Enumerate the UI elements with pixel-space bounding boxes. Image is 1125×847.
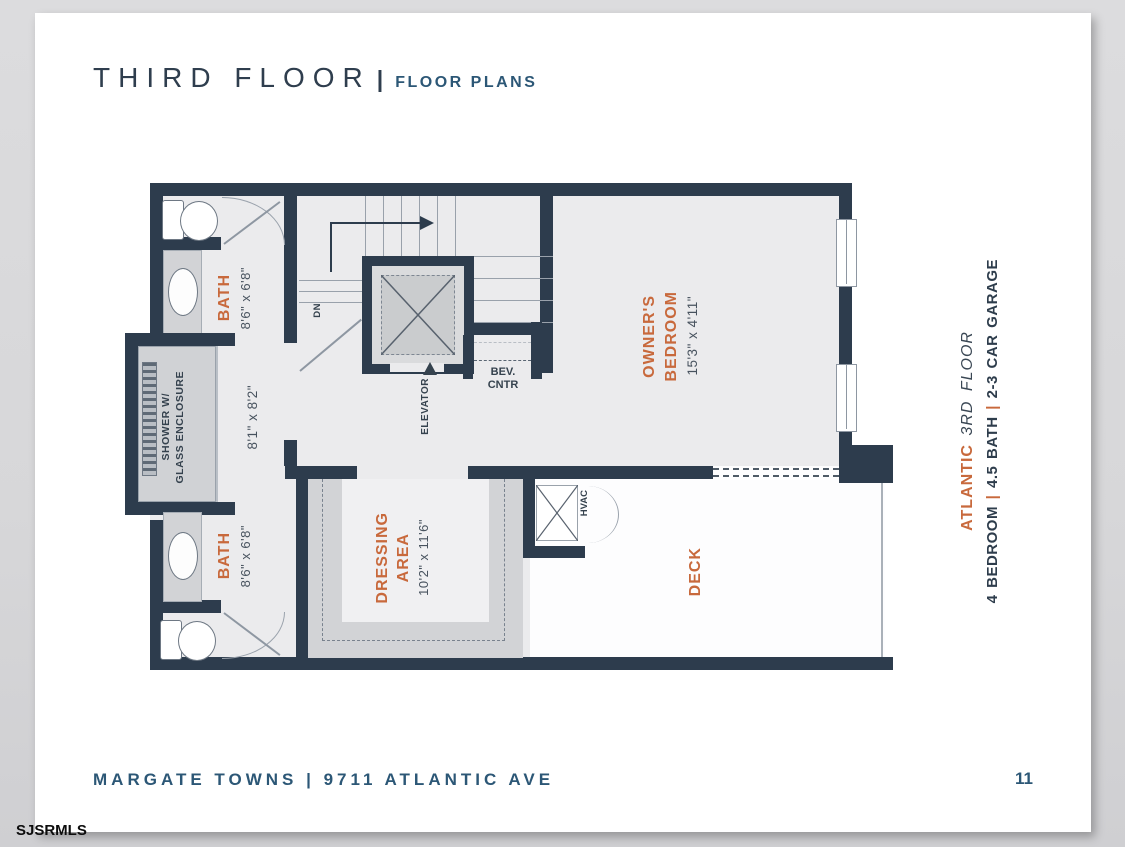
floor-label: 3RD FLOOR	[959, 331, 976, 436]
bath-lower-label: BATH 8'6" x 6'8"	[216, 506, 253, 606]
wall	[125, 333, 138, 515]
spec-separator: |	[984, 494, 1001, 499]
plan-name: ATLANTIC	[959, 444, 976, 531]
window	[836, 219, 857, 287]
wall	[150, 657, 893, 670]
toilet-bowl	[180, 201, 218, 241]
sliding-door-track	[713, 475, 839, 477]
wall	[125, 333, 235, 346]
hall-dims: 8'1" x 8'2"	[245, 385, 260, 450]
wall	[523, 546, 585, 558]
room-dims: 8'6" x 6'8"	[238, 267, 253, 329]
shower-glass	[216, 346, 218, 502]
plan-name-line: ATLANTIC 3RD FLOOR	[959, 331, 977, 531]
counter-dash-line	[474, 342, 531, 343]
room-name: BEDROOM	[663, 291, 681, 382]
spec-separator: |	[984, 405, 1001, 410]
room-dims: 8'6" x 6'8"	[238, 525, 253, 587]
room-name: BATH	[216, 274, 234, 321]
sliding-door	[713, 466, 839, 479]
wall	[468, 466, 713, 479]
room-dims: 15'3" x 4'11"	[685, 296, 700, 376]
room-name: BATH	[216, 532, 234, 579]
deck-label: DECK	[687, 547, 705, 596]
shower-bench	[142, 362, 157, 476]
window	[836, 364, 857, 432]
room-dims: 10'2" x 11'6"	[416, 519, 431, 596]
hvac-x-icon	[536, 485, 578, 541]
spec-garage: 2-3 CAR GARAGE	[984, 259, 1001, 398]
bev-center-line2: CNTR	[468, 379, 538, 392]
sliding-door-track	[713, 468, 839, 470]
toilet-bowl	[178, 621, 216, 661]
stairs-dn-label: DN	[312, 303, 323, 318]
stair-direction-line	[330, 222, 422, 224]
page-number: 11	[1015, 769, 1033, 789]
wall	[296, 466, 308, 658]
plan-specs-line: 4 BEDROOM | 4.5 BATH | 2-3 CAR GARAGE	[984, 259, 1001, 603]
stairs-winders	[299, 275, 362, 303]
shower-label: SHOWER W/ GLASS ENCLOSURE	[160, 352, 186, 502]
elevator-x-icon	[381, 275, 455, 355]
deck-railing	[881, 483, 886, 657]
wall	[284, 183, 297, 343]
elevator-label: ELEVATOR	[420, 378, 431, 435]
owners-bedroom-label: OWNER'S BEDROOM 15'3" x 4'11"	[641, 272, 700, 400]
wall	[284, 440, 297, 466]
arrow-up-icon	[423, 362, 437, 375]
window-glass-line	[846, 220, 847, 284]
mls-watermark: SJSRMLS	[16, 822, 87, 839]
spec-bedroom: 4 BEDROOM	[984, 506, 1001, 603]
window-glass-line	[846, 365, 847, 429]
sink	[168, 532, 198, 580]
wall	[150, 183, 852, 196]
stairs	[365, 196, 473, 256]
shower-label-line1: SHOWER W/	[160, 393, 172, 461]
shower-label-line2: GLASS ENCLOSURE	[174, 371, 186, 484]
dressing-area-label: DRESSING AREA 10'2" x 11'6"	[374, 495, 431, 620]
stairs	[473, 256, 553, 323]
bev-center-line1: BEV.	[468, 366, 538, 379]
bev-center-label: BEV. CNTR	[468, 366, 538, 392]
room-name: AREA	[395, 533, 413, 582]
wall	[839, 445, 893, 483]
sink	[168, 268, 198, 316]
room-name: DRESSING	[374, 512, 392, 604]
plan-info-sidebar: ATLANTIC 3RD FLOOR 4 BEDROOM | 4.5 BATH …	[938, 235, 1022, 627]
counter-dash-line	[474, 360, 531, 361]
spec-bath: 4.5 BATH	[984, 416, 1001, 488]
room-name: OWNER'S	[641, 295, 659, 378]
stair-direction-line	[330, 224, 332, 272]
arrow-right-icon	[420, 216, 434, 230]
footer-address: MARGATE TOWNS | 9711 ATLANTIC AVE	[93, 770, 554, 790]
